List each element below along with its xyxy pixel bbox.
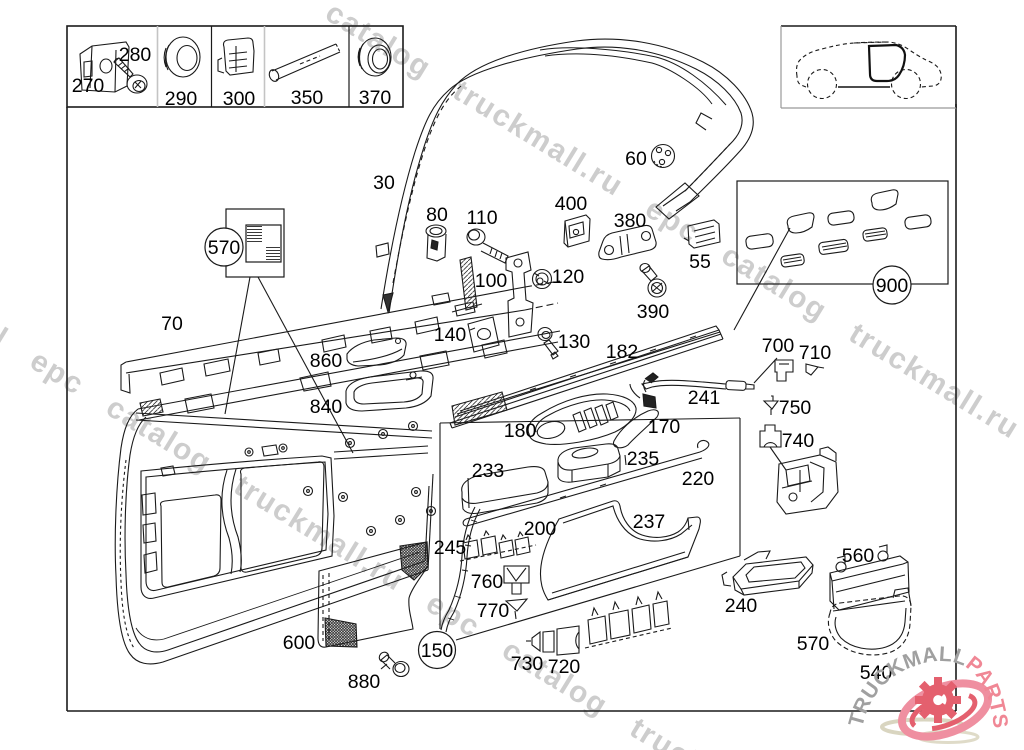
svg-text:170: 170: [648, 416, 681, 438]
svg-text:400: 400: [555, 193, 588, 215]
svg-text:710: 710: [799, 342, 832, 364]
svg-text:240: 240: [725, 595, 758, 617]
svg-text:110: 110: [466, 207, 497, 229]
svg-text:570: 570: [797, 633, 830, 655]
svg-text:290: 290: [165, 88, 198, 110]
svg-text:200: 200: [524, 518, 557, 540]
svg-text:880: 880: [348, 671, 381, 693]
svg-text:740: 740: [782, 430, 815, 452]
svg-text:140: 140: [434, 324, 467, 346]
svg-text:390: 390: [637, 301, 670, 323]
svg-text:770: 770: [477, 600, 510, 622]
svg-text:380: 380: [614, 210, 647, 232]
svg-text:60: 60: [625, 148, 647, 170]
svg-text:860: 860: [310, 350, 343, 372]
svg-text:241: 241: [688, 387, 721, 409]
svg-text:570: 570: [208, 237, 241, 259]
svg-text:220: 220: [682, 468, 715, 490]
svg-text:233: 233: [472, 460, 505, 482]
svg-text:280: 280: [119, 44, 152, 66]
svg-text:270: 270: [72, 75, 105, 97]
svg-text:237: 237: [633, 511, 666, 533]
svg-text:350: 350: [291, 87, 324, 109]
svg-text:70: 70: [161, 313, 183, 335]
svg-text:245: 245: [434, 537, 467, 559]
svg-text:600: 600: [283, 632, 316, 654]
svg-text:80: 80: [426, 204, 448, 226]
svg-text:l epc catalog truckmall.ru epc: l epc catalog truckmall.ru epc catalog t…: [0, 322, 882, 750]
svg-text:750: 750: [779, 397, 812, 419]
svg-text:55: 55: [689, 251, 711, 273]
svg-text:840: 840: [310, 396, 343, 418]
svg-text:100: 100: [475, 270, 508, 292]
svg-text:370: 370: [359, 87, 392, 109]
svg-text:130: 130: [558, 331, 591, 353]
svg-text:30: 30: [373, 172, 395, 194]
svg-text:900: 900: [876, 275, 909, 297]
svg-text:760: 760: [471, 571, 504, 593]
svg-text:700: 700: [762, 335, 795, 357]
svg-text:235: 235: [627, 448, 660, 470]
svg-text:560: 560: [842, 545, 875, 567]
svg-text:pc catalog truckmall.ru epc ca: pc catalog truckmall.ru epc catalog truc…: [259, 0, 1024, 492]
svg-text:720: 720: [548, 656, 581, 678]
svg-text:180: 180: [504, 420, 537, 442]
svg-text:182: 182: [606, 341, 639, 363]
svg-text:150: 150: [421, 640, 454, 662]
svg-text:730: 730: [511, 653, 544, 675]
svg-text:300: 300: [223, 88, 256, 110]
svg-text:120: 120: [552, 266, 585, 288]
